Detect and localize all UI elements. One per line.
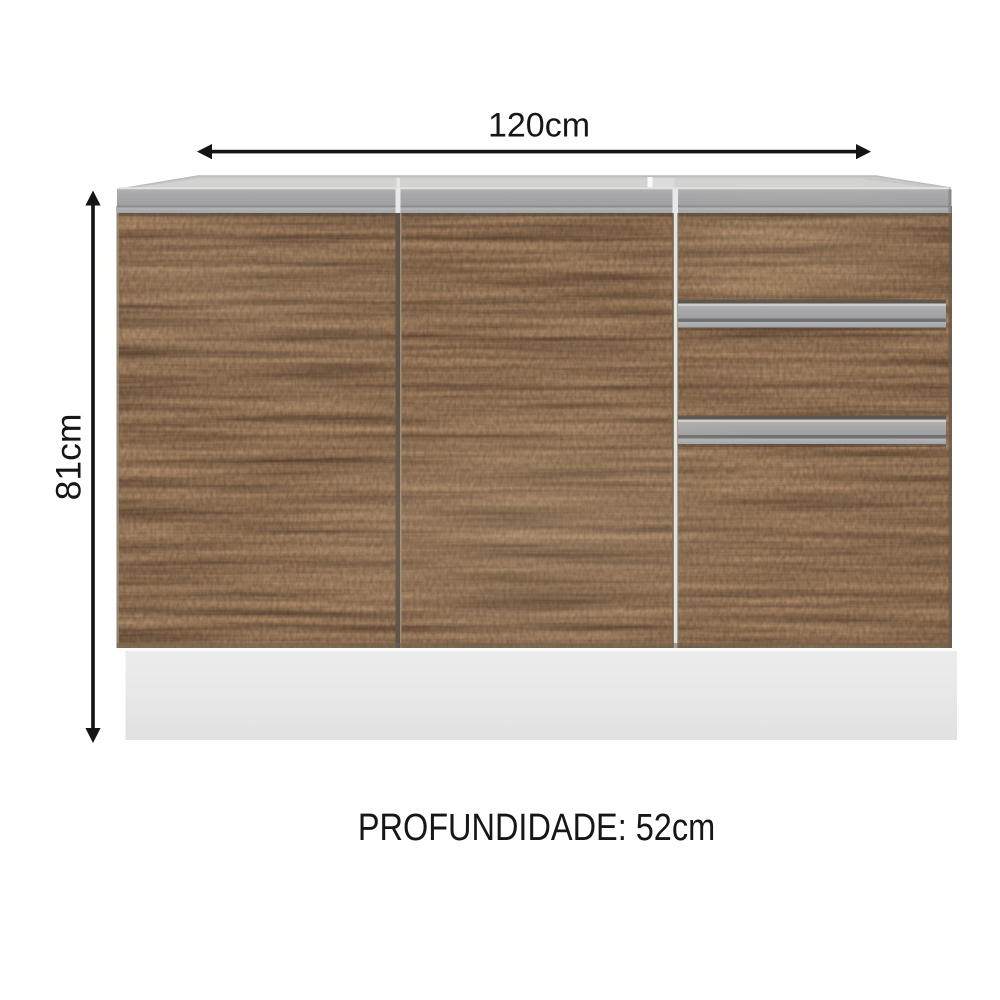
svg-text:81cm: 81cm [49, 414, 89, 501]
svg-text:PROFUNDIDADE: 52cm: PROFUNDIDADE: 52cm [358, 807, 715, 849]
svg-text:120cm: 120cm [488, 107, 590, 145]
